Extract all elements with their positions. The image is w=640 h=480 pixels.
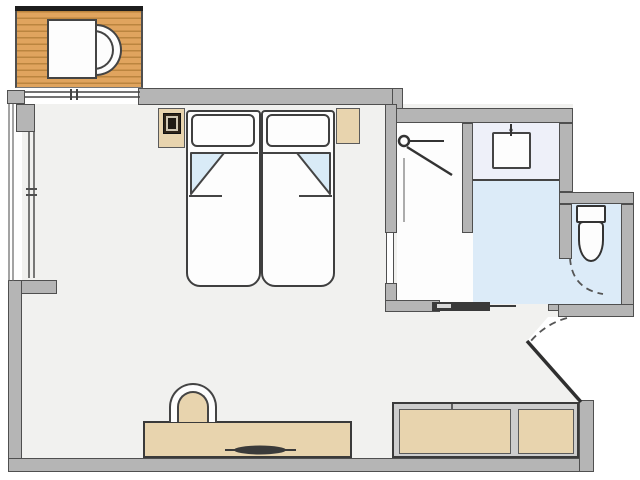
balcony-door xyxy=(25,89,140,100)
sheet-fold-left-bed xyxy=(189,153,258,196)
bedside-lamp-core xyxy=(168,118,176,129)
left-exterior-ledge xyxy=(9,104,13,281)
desk-accessory xyxy=(225,446,296,455)
sheet-fold-right-bed xyxy=(263,153,332,196)
floor-plan xyxy=(0,0,640,480)
shower-head-symbol xyxy=(399,136,452,222)
sliding-door-handle xyxy=(437,304,451,308)
line-art-overlay xyxy=(0,0,640,480)
left-window xyxy=(26,132,37,278)
basin-tap-icon xyxy=(509,124,512,136)
wc-door-swing xyxy=(570,258,603,294)
entry-door-swing xyxy=(530,318,567,342)
entry-angled-wall xyxy=(527,341,581,402)
